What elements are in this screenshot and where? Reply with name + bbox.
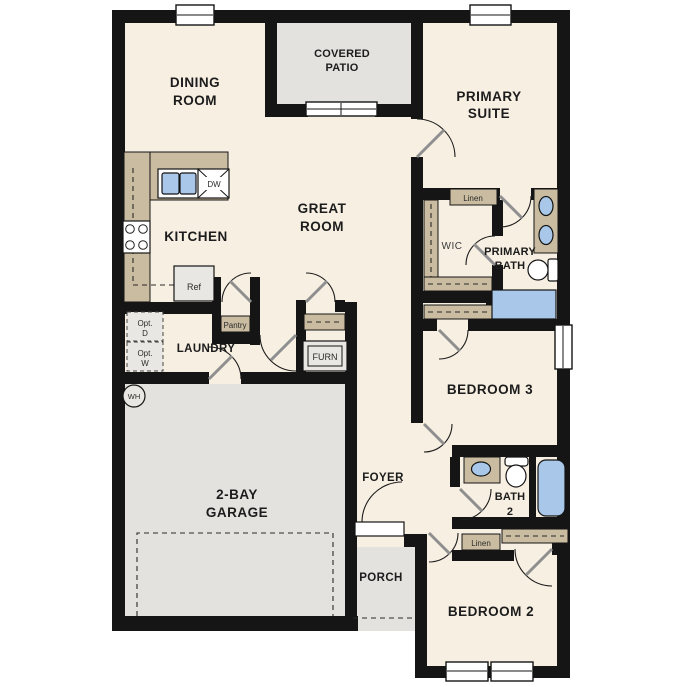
wall [375, 104, 423, 117]
furnace-unit: FURN [303, 341, 347, 371]
wall [241, 372, 357, 384]
room-label-primary-suite: SUITE [468, 106, 510, 121]
refrigerator-label: Ref [187, 282, 202, 292]
room-label-great-room: ROOM [300, 219, 344, 234]
wall [345, 534, 356, 547]
room-label-covered-patio: PATIO [326, 62, 359, 74]
dishwasher-label: DW [207, 180, 221, 189]
room-label-great-room: GREAT [298, 201, 347, 216]
room-label-bedroom3: BEDROOM 3 [447, 382, 533, 397]
pantry-closet: Pantry [221, 316, 250, 332]
wall [265, 10, 277, 117]
linen-label: Linen [471, 539, 491, 548]
room-label-garage: GARAGE [206, 505, 268, 520]
wall [112, 10, 125, 631]
vanity-sink [539, 197, 553, 216]
toilet-tank [548, 259, 558, 281]
exterior-cutout [345, 631, 415, 687]
wall [404, 534, 415, 547]
wall [112, 616, 358, 631]
wall [452, 445, 570, 457]
linen-closet-upper: Linen [450, 189, 497, 205]
optional-dryer-label: D [142, 329, 148, 338]
room-label-foyer: FOYER [362, 472, 404, 484]
refrigerator: Ref [174, 266, 214, 301]
room-label-bath2: 2 [507, 506, 513, 518]
optional-dryer-label: Opt. [137, 319, 152, 328]
wall [112, 372, 209, 384]
range [123, 221, 150, 253]
room-label-kitchen: KITCHEN [164, 229, 228, 244]
vanity-sink [539, 226, 553, 245]
furnace-label: FURN [313, 352, 338, 362]
room-label-primary-bath: PRIMARY [484, 246, 536, 258]
room-label-dining: ROOM [173, 93, 217, 108]
wall [411, 319, 437, 331]
room-label-primary-bath: BATH [495, 260, 526, 272]
room-label-wic: WIC [442, 241, 463, 252]
bathtub [538, 460, 565, 516]
toilet-bowl [528, 260, 548, 280]
room-label-bedroom2: BEDROOM 2 [448, 604, 534, 619]
room-label-primary-suite: PRIMARY [456, 89, 521, 104]
water-heater-label: WH [128, 392, 141, 401]
linen-closet-lower: Linen [462, 534, 500, 550]
wall [452, 550, 514, 561]
floor-plan: DW Ref Opt. D Opt. W WH [0, 0, 687, 687]
room-label-porch: PORCH [359, 572, 403, 584]
pantry-label: Pantry [223, 321, 246, 330]
optional-washer-label: W [141, 359, 149, 368]
shower-tub [492, 290, 556, 319]
wall [552, 543, 570, 555]
wall [415, 534, 427, 678]
sink-basin [180, 173, 196, 194]
exterior-cutout [112, 631, 345, 687]
front-door-slab [355, 522, 404, 536]
wall [265, 104, 308, 117]
wall [529, 455, 536, 517]
room-label-bath2: BATH [495, 491, 526, 503]
room-label-covered-patio: COVERED [314, 48, 370, 60]
optional-washer-label: Opt. [137, 349, 152, 358]
room-label-dining: DINING [170, 75, 220, 90]
room-label-garage: 2-BAY [216, 487, 258, 502]
wall [411, 10, 423, 119]
sink-basin [162, 173, 179, 194]
room-label-laundry: LAUNDRY [177, 343, 236, 355]
toilet-bowl [506, 465, 526, 487]
wall [335, 300, 345, 312]
dishwasher: DW [198, 169, 229, 198]
wall [450, 457, 460, 487]
floor-plan-page: DW Ref Opt. D Opt. W WH [0, 0, 687, 687]
vanity-sink [472, 462, 491, 476]
linen-label: Linen [463, 194, 483, 203]
wall [411, 291, 497, 303]
